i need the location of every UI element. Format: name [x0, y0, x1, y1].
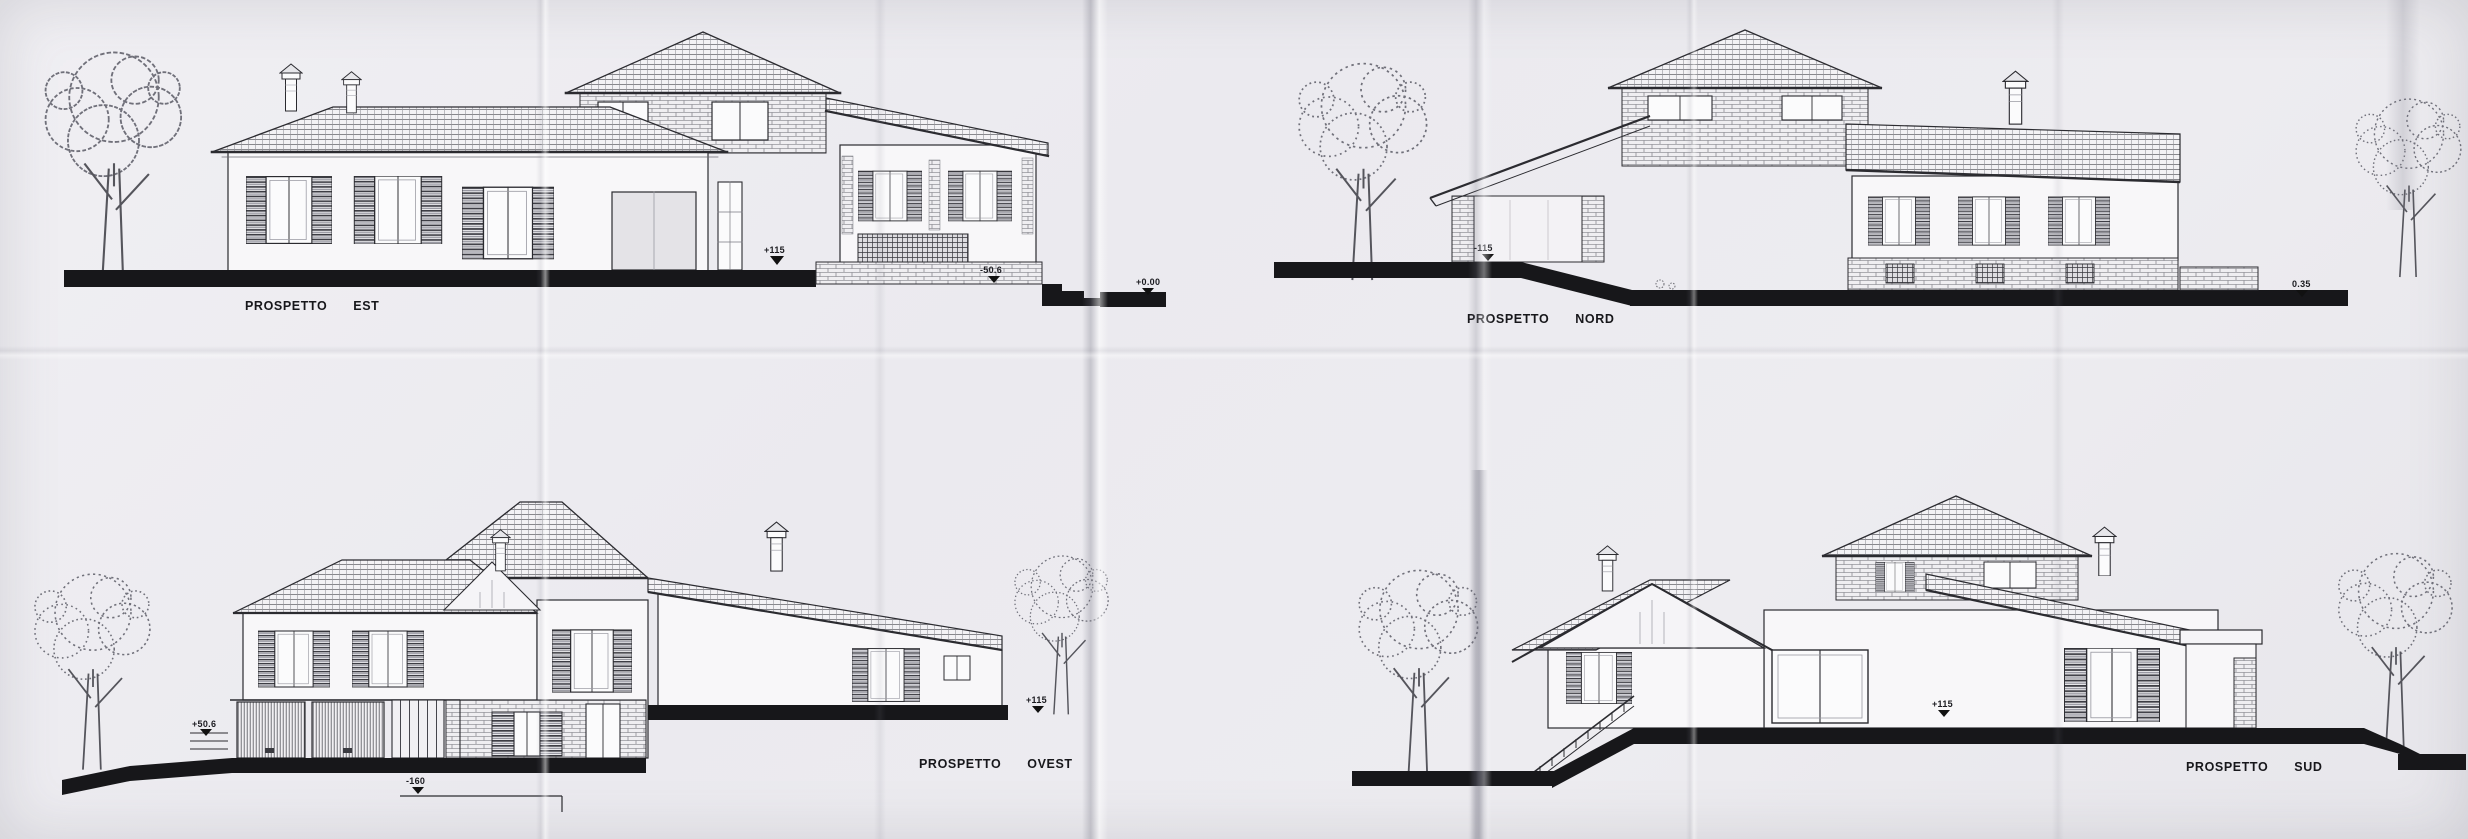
label-word: NORD: [1575, 312, 1614, 326]
nord-right-wing: [1846, 71, 2180, 290]
svg-text:-115: -115: [1474, 243, 1493, 253]
window-shuttered: [852, 649, 920, 702]
window-shuttered: [352, 631, 424, 687]
label-word: PROSPETTO: [919, 757, 1001, 771]
svg-text:+115: +115: [764, 245, 785, 255]
window-shuttered: [1958, 197, 2020, 245]
window-shuttered: [258, 631, 330, 687]
window-shuttered: [1868, 197, 1930, 245]
window-shuttered: [552, 630, 632, 692]
gate-railing: [392, 700, 444, 758]
terrace-railing: [858, 234, 968, 262]
elevation-label-sud: PROSPETTO SUD: [2186, 760, 2322, 774]
elevation-drawings: +115 -50.6 +0.00: [0, 0, 2468, 839]
glazed-door-shuttered: [2064, 648, 2159, 722]
elevation-label-nord: PROSPETTO NORD: [1467, 312, 1615, 326]
nord-ground: [1274, 262, 2348, 306]
tree-sketch: [1359, 570, 1477, 771]
chimney: [2093, 527, 2116, 576]
chimney: [1597, 546, 1618, 591]
tree-sketch: [1299, 64, 1426, 280]
tree-sketch: [35, 574, 150, 769]
svg-text:+0.00: +0.00: [1136, 277, 1160, 287]
level-marker: -160: [406, 776, 425, 794]
svg-text:+115: +115: [1026, 695, 1047, 705]
elevation-est-drawing: +115 -50.6 +0.00: [46, 32, 1166, 307]
svg-text:-160: -160: [406, 776, 425, 786]
french-door-shuttered: [462, 187, 554, 259]
chimney: [280, 64, 302, 111]
nord-carport: [1430, 116, 1650, 262]
elevation-label-ovest: PROSPETTO OVEST: [919, 757, 1073, 771]
svg-text:+50.6: +50.6: [192, 719, 216, 729]
tree-sketch: [46, 52, 182, 282]
elevation-sud-drawing: +115: [1352, 496, 2466, 788]
label-word: EST: [353, 299, 379, 313]
window-shuttered: [246, 177, 332, 244]
svg-text:-50.6: -50.6: [980, 265, 1002, 275]
label-word: SUD: [2294, 760, 2322, 774]
window-shuttered: [1566, 652, 1632, 703]
label-word: PROSPETTO: [245, 299, 327, 313]
scanned-elevation-sheet: +115 -50.6 +0.00: [0, 0, 2468, 839]
svg-text:+115: +115: [1932, 699, 1953, 709]
label-word: PROSPETTO: [2186, 760, 2268, 774]
chimney: [2003, 71, 2028, 124]
label-word: PROSPETTO: [1467, 312, 1549, 326]
level-marker: +115: [1026, 695, 1047, 713]
sud-left-wing: [1512, 546, 1790, 728]
elevation-label-est: PROSPETTO EST: [245, 299, 379, 313]
tree-sketch: [1015, 556, 1108, 714]
chimney: [765, 522, 788, 571]
tree-sketch: [2339, 554, 2452, 747]
window-shuttered: [2048, 197, 2110, 245]
elevation-nord-drawing: -115 0.35: [1274, 30, 2461, 306]
ovest-lower-level: [190, 700, 646, 758]
ramp-steps: [190, 733, 228, 749]
window-shuttered: [354, 176, 441, 244]
nord-tower: [1608, 30, 1882, 166]
label-word: OVEST: [1027, 757, 1072, 771]
tree-sketch: [2356, 99, 2461, 277]
sud-ground: [1352, 728, 2466, 788]
level-marker: +115: [764, 245, 785, 265]
svg-text:0.35: 0.35: [2292, 279, 2311, 289]
